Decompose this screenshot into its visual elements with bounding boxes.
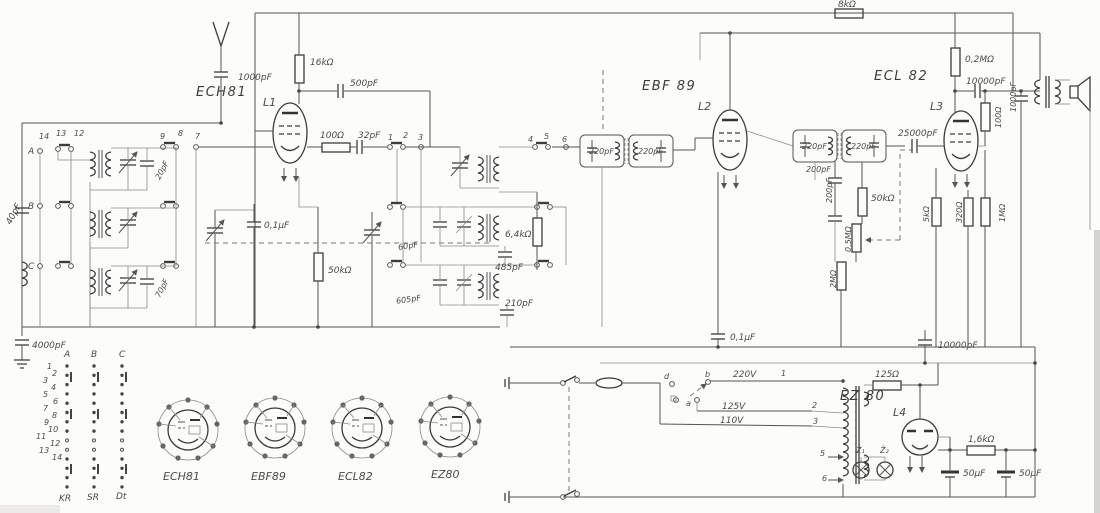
table-row-label: 8 bbox=[52, 411, 57, 420]
band-dt-label: Dt bbox=[116, 492, 127, 502]
r50k-value: 50kΩ bbox=[328, 266, 352, 276]
radio-schematic: 1000pF 40pF 4000pF A 14 13 12 9 8 7 20p bbox=[0, 0, 1100, 513]
pin-4: 4 bbox=[528, 135, 533, 144]
speaker-icon bbox=[1070, 77, 1090, 111]
ez80-stage: EZ 80 L4 125Ω 1,6kΩ 50μF 50μF bbox=[840, 347, 1042, 497]
ebf89-tube bbox=[713, 110, 747, 170]
band-kr-label: KR bbox=[59, 494, 71, 504]
c01b-capacitor bbox=[711, 334, 725, 339]
band-b-label: B bbox=[28, 202, 34, 212]
ebf89-base-diagram bbox=[243, 395, 306, 458]
if1-cap2-value: 220pF bbox=[638, 147, 663, 156]
c10000b-value: 10000pF bbox=[938, 341, 978, 351]
c10000b-capacitor bbox=[918, 340, 932, 345]
ech81-tube bbox=[273, 103, 307, 163]
table-row-label: 14 bbox=[52, 453, 62, 462]
pin-6: 6 bbox=[562, 135, 567, 144]
v220-label: 220V bbox=[733, 370, 757, 380]
r02m-resistor bbox=[951, 48, 960, 76]
osc-transformer-2 bbox=[478, 214, 499, 242]
lamp1-label: Ž₁ bbox=[855, 444, 865, 455]
c500-value: 500pF bbox=[350, 79, 379, 89]
selector-b-label: b bbox=[705, 370, 710, 379]
c200b-value: 200pF bbox=[825, 178, 834, 203]
r1m-value: 1MΩ bbox=[998, 203, 1007, 222]
ebf89-stage: EBF 89 L2 bbox=[642, 31, 793, 334]
c01-value: 0,1μF bbox=[264, 221, 290, 231]
pin-7: 7 bbox=[195, 132, 201, 141]
band-switch-section: A 14 13 12 9 8 7 20pF B C bbox=[27, 129, 201, 327]
pin-8: 8 bbox=[178, 129, 183, 138]
mains-plug-bottom bbox=[505, 491, 509, 503]
scan-smudge bbox=[0, 505, 60, 513]
table-row-label: 3 bbox=[43, 376, 48, 385]
rf-transformer-b bbox=[90, 210, 111, 238]
rf-transformer-a bbox=[90, 150, 111, 178]
ebf89-base-label: EBF89 bbox=[251, 470, 286, 483]
mains-switch-top bbox=[564, 376, 576, 382]
c210-value: 210pF bbox=[505, 299, 534, 309]
padder-a bbox=[140, 161, 154, 166]
c50b-value: 50μF bbox=[1019, 469, 1042, 479]
r2m-resistor bbox=[837, 262, 846, 290]
ecl82-base-diagram bbox=[330, 395, 393, 458]
osc-transformer-3 bbox=[478, 272, 499, 300]
antenna-input-section: 1000pF 40pF 4000pF bbox=[5, 22, 500, 368]
c50a-value: 50μF bbox=[963, 469, 986, 479]
r50k2-value: 50kΩ bbox=[871, 194, 895, 204]
band-c-label: C bbox=[28, 262, 35, 272]
selector-a-label: a bbox=[686, 399, 691, 408]
r16-value: 1,6kΩ bbox=[968, 435, 995, 445]
output-transformer-secondary bbox=[1055, 80, 1060, 104]
r2m-value: 2MΩ bbox=[829, 269, 838, 288]
r1m-resistor bbox=[981, 198, 990, 226]
r320-resistor bbox=[964, 198, 973, 226]
c605-value: 605pF bbox=[396, 293, 422, 305]
l1-label: L1 bbox=[263, 96, 276, 109]
c01b-value: 0,1μF bbox=[730, 333, 756, 343]
osc-cap-2 bbox=[433, 222, 447, 227]
ez80-title: EZ 80 bbox=[840, 389, 885, 404]
table-col-a: A bbox=[63, 350, 70, 360]
pilot-lamp-2 bbox=[877, 462, 893, 478]
c50b-capacitor bbox=[997, 472, 1015, 477]
c25000-value: 25000pF bbox=[898, 129, 938, 139]
fuse-icon bbox=[596, 378, 622, 388]
output-transformer-primary bbox=[1035, 80, 1040, 104]
ecl82-base-label: ECL82 bbox=[338, 470, 373, 483]
lamp2-label: Ž₂ bbox=[879, 444, 889, 455]
table-row-label: 7 bbox=[43, 404, 49, 413]
table-row-label: 11 bbox=[36, 432, 46, 441]
ecl82-stage: ECL 82 L3 8kΩ 0,2MΩ 10000pF 100Ω 1000pF bbox=[255, 0, 1090, 347]
tap3-label: 3 bbox=[813, 417, 818, 426]
sec5-label: 5 bbox=[820, 449, 825, 458]
osc-cap-3 bbox=[433, 280, 447, 285]
input-cap-value: 40pF bbox=[5, 201, 25, 226]
tube-base-diagrams: ECH81 EBF89 ECL82 EZ80 bbox=[156, 394, 481, 483]
selector-d-label: d bbox=[664, 372, 670, 381]
l3-label: L3 bbox=[930, 100, 943, 113]
pin-2: 2 bbox=[403, 131, 408, 140]
c485-value: 485pF bbox=[495, 263, 524, 273]
ground-capacitor bbox=[15, 340, 29, 345]
r100b-value: 100Ω bbox=[994, 106, 1003, 128]
r50k2-resistor bbox=[858, 188, 867, 216]
ech81-stage: ECH81 L1 16kΩ 500pF 100Ω 32pF 0,1μF bbox=[196, 13, 492, 329]
ech81-base-diagram bbox=[156, 397, 219, 460]
switch-position-table: A B C 1 2 3 4 5 6 7 8 9 10 11 12 13 14 K… bbox=[36, 350, 127, 504]
pin-9: 9 bbox=[160, 132, 165, 141]
antenna-icon bbox=[213, 22, 229, 46]
trim-c-value: 70pF bbox=[154, 277, 171, 299]
r05m-value: 0,5MΩ bbox=[844, 225, 853, 252]
pin-13: 13 bbox=[56, 129, 66, 138]
sec6-label: 6 bbox=[822, 474, 827, 483]
tap2-label: 2 bbox=[812, 401, 817, 410]
ground-icon bbox=[14, 360, 30, 368]
pin-1: 1 bbox=[388, 133, 393, 142]
osc-transformer-1 bbox=[478, 155, 499, 183]
mains-plug-top bbox=[505, 377, 509, 389]
r16-resistor bbox=[967, 446, 995, 455]
oscillator-section: 1 2 3 4 5 6 60pF 605pF bbox=[388, 131, 580, 327]
r02m-value: 0,2MΩ bbox=[965, 55, 994, 65]
trim-a-value: 20pF bbox=[154, 159, 171, 181]
ebf89-title: EBF 89 bbox=[642, 79, 696, 94]
rf-transformer-c bbox=[90, 268, 111, 296]
c32-value: 32pF bbox=[358, 131, 381, 141]
r100b-resistor bbox=[981, 103, 990, 131]
if2-cap-extra bbox=[828, 216, 842, 221]
avc-dashed-path bbox=[900, 150, 912, 240]
table-row-label: 13 bbox=[39, 446, 49, 455]
r64-resistor bbox=[533, 218, 542, 246]
r320-value: 320Ω bbox=[955, 201, 964, 223]
schematic-page: 1000pF 40pF 4000pF A 14 13 12 9 8 7 20p bbox=[0, 0, 1100, 513]
c50a-capacitor bbox=[941, 472, 959, 477]
l4-label: L4 bbox=[893, 406, 906, 419]
tap1-label: 1 bbox=[781, 369, 786, 378]
if1-cap1-value: 220pF bbox=[589, 147, 614, 156]
padder-c bbox=[140, 279, 154, 284]
if-transformer-1: 220pF 220pF bbox=[580, 70, 713, 327]
r16k-resistor bbox=[295, 55, 304, 83]
ez80-tube bbox=[902, 419, 938, 455]
ech81-title: ECH81 bbox=[196, 85, 247, 100]
pin-5: 5 bbox=[544, 132, 549, 141]
l2-label: L2 bbox=[698, 100, 711, 113]
r100-value: 100Ω bbox=[320, 131, 344, 141]
c25000-capacitor bbox=[912, 139, 917, 153]
mains-switch-bottom bbox=[564, 490, 576, 496]
ech81-base-label: ECH81 bbox=[163, 470, 200, 483]
table-dots-c bbox=[120, 364, 126, 488]
selector-wiper bbox=[690, 384, 706, 396]
r05m-potentiometer bbox=[852, 224, 861, 252]
pin-12: 12 bbox=[74, 129, 84, 138]
switch-contact bbox=[56, 145, 74, 151]
band-a-label: A bbox=[27, 147, 34, 157]
ecl82-tube bbox=[944, 111, 978, 171]
if2-cap1-value: 220pF bbox=[802, 142, 827, 151]
r125-value: 125Ω bbox=[875, 370, 899, 380]
power-supply-section: d b a 220V 1 125V 2 110V 3 5 6 Ž₁ Ž₂ bbox=[505, 369, 1035, 503]
switch-contact bbox=[388, 143, 406, 149]
ground-cap-value: 4000pF bbox=[32, 341, 67, 351]
c485-capacitor bbox=[498, 252, 512, 257]
c10000-value: 10000pF bbox=[966, 77, 1006, 87]
table-row-label: 10 bbox=[48, 425, 58, 434]
table-col-c: C bbox=[119, 350, 126, 360]
c500-capacitor bbox=[338, 84, 343, 98]
r8k-value: 8kΩ bbox=[838, 0, 856, 10]
c32-capacitor bbox=[357, 140, 362, 154]
pin-3: 3 bbox=[418, 133, 423, 142]
band-sr-label: SR bbox=[87, 493, 99, 503]
table-row-label: 6 bbox=[53, 397, 58, 406]
table-row-label: 4 bbox=[51, 383, 56, 392]
switch-contact bbox=[388, 203, 406, 209]
table-col-b: B bbox=[91, 350, 97, 360]
r5k-resistor bbox=[932, 198, 941, 226]
ecl82-title: ECL 82 bbox=[874, 69, 928, 84]
r50k-resistor bbox=[314, 253, 323, 281]
r16k-value: 16kΩ bbox=[310, 58, 334, 68]
decoupling-section: 0,1μF 10000pF bbox=[510, 330, 1035, 365]
r64-value: 6,4kΩ bbox=[505, 230, 532, 240]
pin-14: 14 bbox=[39, 132, 49, 141]
r100-resistor bbox=[322, 143, 350, 152]
r5k-value: 5kΩ bbox=[922, 205, 931, 222]
c01-capacitor bbox=[247, 222, 261, 227]
table-dots-b bbox=[92, 364, 98, 488]
c60-value: 60pF bbox=[398, 240, 419, 252]
ez80-base-label: EZ80 bbox=[431, 468, 459, 481]
if2-cap2-value: 220pF bbox=[851, 142, 876, 151]
scan-edge bbox=[1094, 230, 1100, 513]
table-dots-a bbox=[65, 364, 71, 488]
table-row-label: 2 bbox=[52, 369, 57, 378]
table-row-label: 12 bbox=[50, 439, 60, 448]
input-coil-icon bbox=[22, 262, 27, 286]
ez80-base-diagram bbox=[418, 394, 481, 457]
c200a-value: 200pF bbox=[806, 165, 831, 174]
switch-contact bbox=[533, 143, 551, 149]
antenna-capacitor bbox=[214, 72, 228, 77]
if-transformer-2: 220pF 220pF 200pF 200pF 50kΩ 0,5MΩ 2MΩ 2… bbox=[793, 129, 944, 347]
c210-capacitor bbox=[500, 310, 514, 315]
table-row-label: 5 bbox=[43, 390, 48, 399]
